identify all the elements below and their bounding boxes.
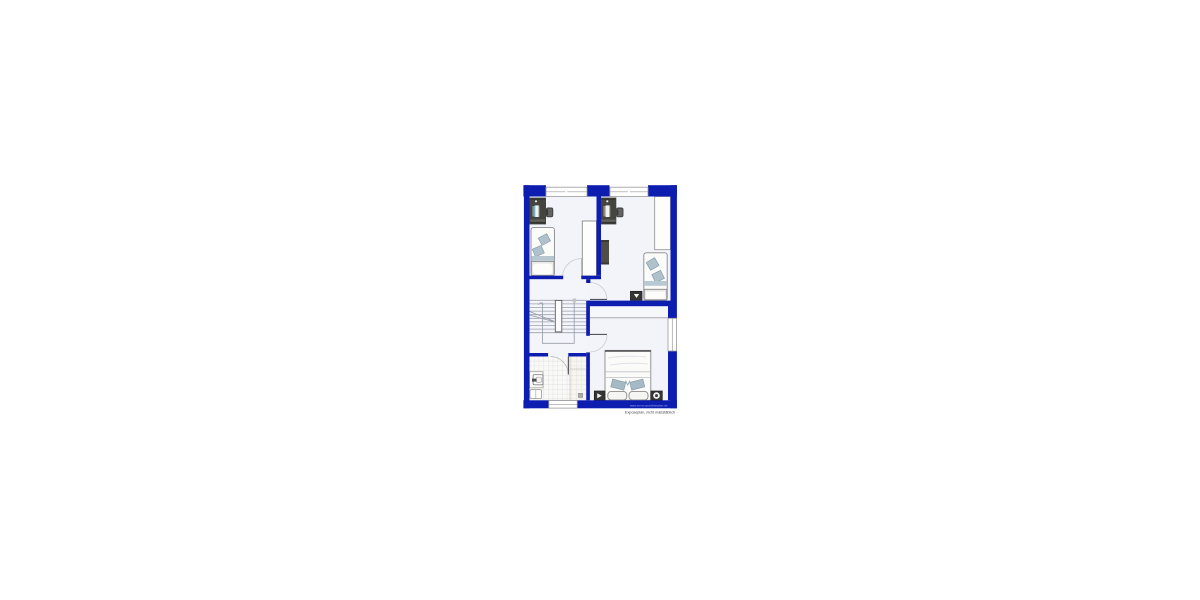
svg-text:www.immo-grundrissplan.de: www.immo-grundrissplan.de	[630, 403, 668, 407]
svg-text:Exposeplan, nicht maßstäblich: Exposeplan, nicht maßstäblich	[625, 410, 675, 414]
